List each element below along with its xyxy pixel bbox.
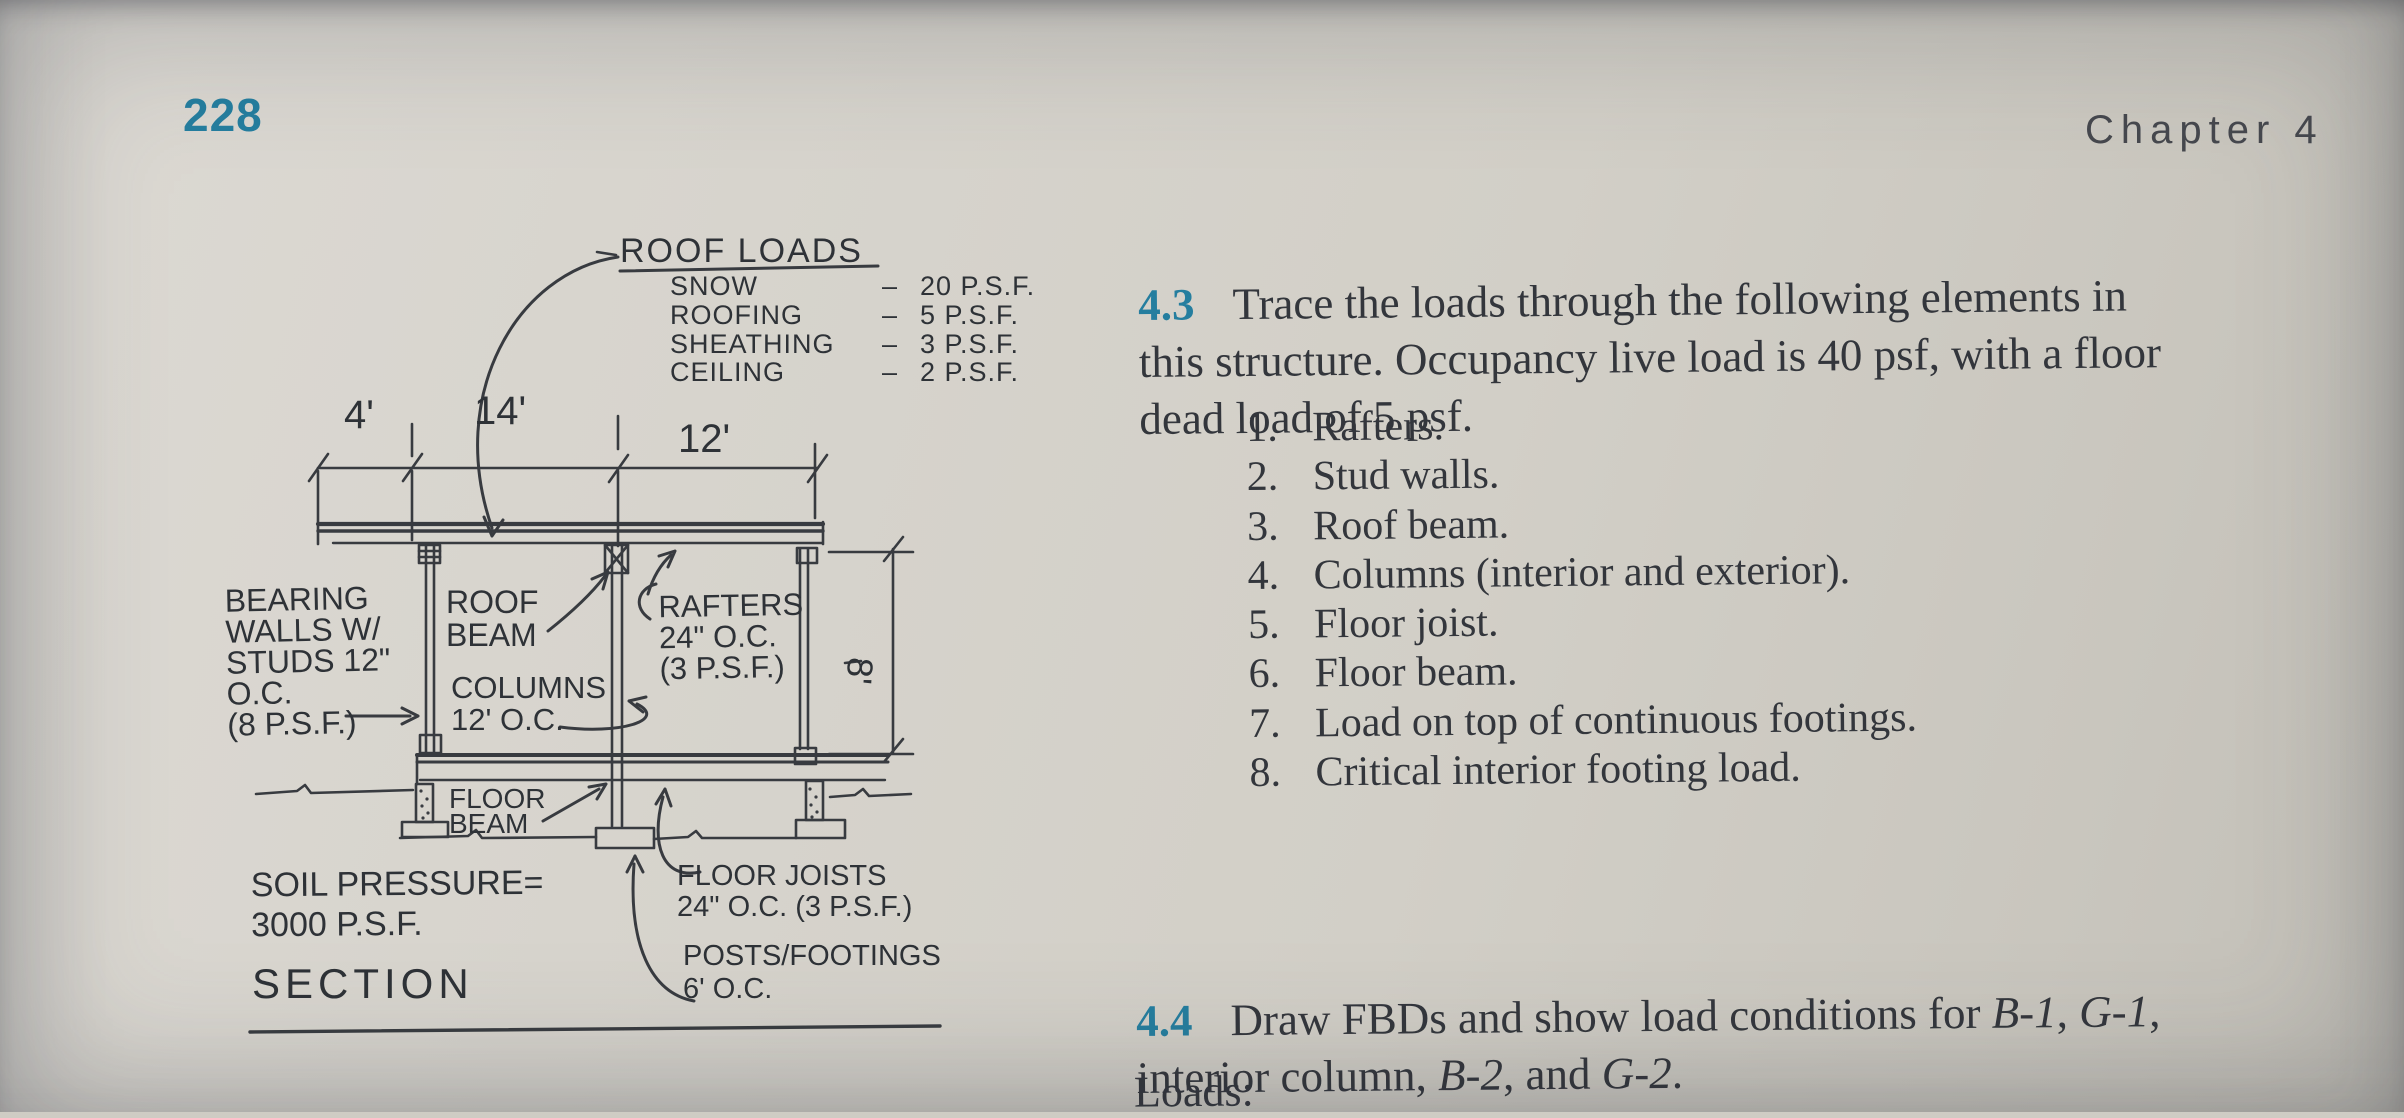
problem-4-3-item: 5.Floor joist.	[1248, 595, 1916, 651]
problem-4-3-number: 4.3	[1138, 279, 1195, 330]
roof-plane	[318, 522, 823, 544]
problem-4-4-text: Draw FBDs and show load conditions for B…	[1137, 986, 2161, 1103]
page-number: 228	[183, 88, 263, 142]
loads-label: Loads:	[1134, 1065, 1254, 1117]
problem-4-3-list: 1.Rafters.2.Stud walls.3.Roof beam.4.Col…	[1246, 398, 1918, 799]
roof-load-row: CEILING–2 P.S.F.	[670, 358, 1035, 387]
label-floor-beam: FLOOR BEAM	[449, 786, 545, 836]
problem-4-3-item: 2.Stud walls.	[1246, 447, 1914, 503]
floor-plane	[417, 755, 888, 784]
problem-4-3-item: 8.Critical interior footing load.	[1249, 743, 1917, 799]
book-page: 228 Chapter 4	[0, 0, 2404, 1112]
dim-span-left: 14'	[474, 390, 526, 432]
dim-span-right: 12'	[678, 418, 730, 460]
problem-4-4: 4.4Draw FBDs and show load conditions fo…	[1136, 981, 2404, 1107]
interior-column	[605, 545, 628, 826]
section-title: SECTION	[252, 962, 474, 1006]
problem-4-3-item: 1.Rafters.	[1246, 398, 1914, 454]
problem-4-3-item: 4.Columns (interior and exterior).	[1247, 545, 1915, 601]
bearing-wall-left	[419, 545, 441, 753]
roof-load-row: ROOFING–5 P.S.F.	[670, 301, 1035, 330]
label-rafters: RAFTERS 24" O.C. (3 P.S.F.)	[658, 589, 804, 685]
height-dimension	[829, 537, 913, 762]
label-soil-pressure: SOIL PRESSURE= 3000 P.S.F.	[251, 863, 544, 946]
roof-loads-title: ROOF LOADS	[620, 234, 863, 270]
label-floor-joists: FLOOR JOISTS 24" O.C. (3 P.S.F.)	[677, 861, 912, 923]
label-roof-beam: ROOF BEAM	[446, 586, 538, 652]
problem-4-4-number: 4.4	[1136, 995, 1193, 1046]
dim-overhang: 4'	[344, 394, 374, 436]
section-drawing	[0, 0, 2404, 1112]
chapter-heading: Chapter 4	[2085, 108, 2324, 153]
problem-4-3-item: 6.Floor beam.	[1248, 644, 1916, 700]
roof-load-row: SNOW–20 P.S.F.	[670, 272, 1035, 301]
grade-lines	[256, 785, 911, 839]
label-posts-footings: POSTS/FOOTINGS 6' O.C.	[683, 940, 941, 1006]
dimension-line	[309, 416, 827, 546]
label-columns: COLUMNS 12' O.C.	[451, 672, 606, 736]
problem-4-3-item: 7.Load on top of continuous footings.	[1249, 693, 1917, 749]
problem-4-3-item: 3.Roof beam.	[1247, 496, 1915, 552]
label-bearing-walls: BEARING WALLS W/ STUDS 12" O.C. (8 P.S.F…	[224, 582, 392, 740]
dim-height: 8'	[840, 656, 880, 685]
roof-loads-table: SNOW–20 P.S.F.ROOFING–5 P.S.F.SHEATHING–…	[670, 272, 1035, 387]
roof-load-row: SHEATHING–3 P.S.F.	[670, 330, 1035, 359]
